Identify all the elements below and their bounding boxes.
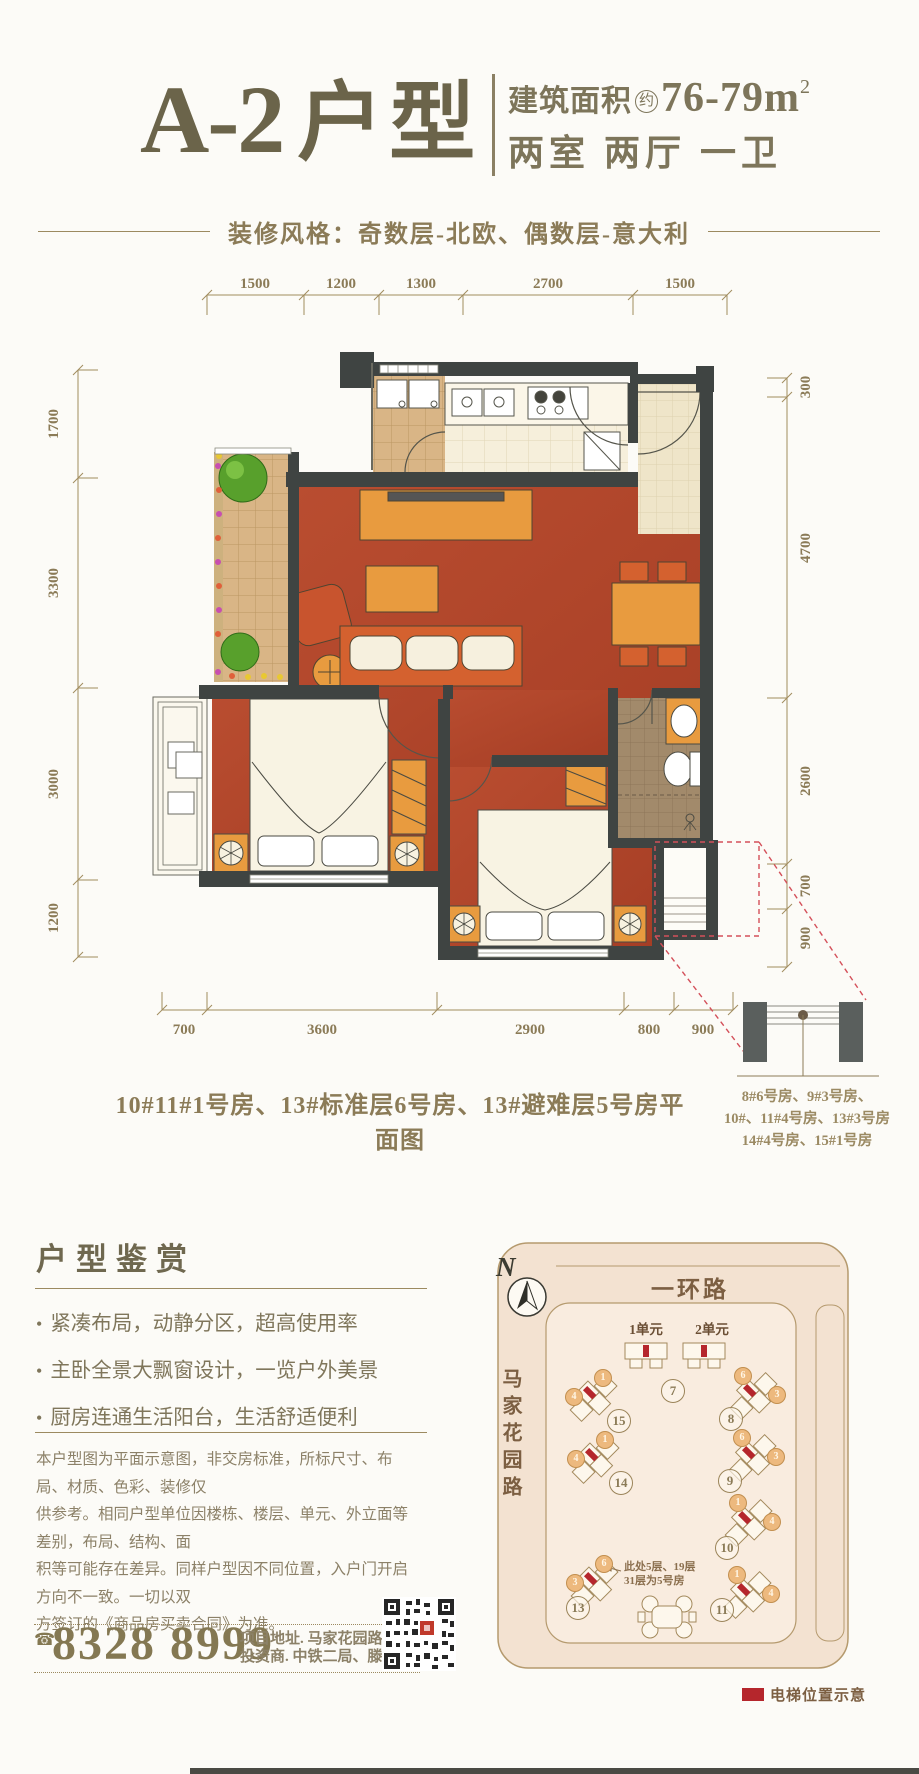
unit-circle: 3 xyxy=(566,1574,584,1592)
unit-type-suffix: 户型 xyxy=(297,75,481,171)
unit-circle: 4 xyxy=(763,1513,781,1531)
sink xyxy=(671,705,697,737)
dim-bottom-2: 2900 xyxy=(515,1022,545,1038)
style-banner-text: 装修风格：奇数层-北欧、偶数层-意大利 xyxy=(228,214,690,249)
coffee-table xyxy=(366,566,438,612)
qr-code xyxy=(382,1597,456,1671)
plan-caption: 10#11#1号房、13#标准层6号房、13#避难层5号房平面图 xyxy=(105,1085,695,1155)
rooms-line: 两室 两厅 一卫 xyxy=(508,124,782,176)
map-note-line: 31层为5号房 xyxy=(624,1574,744,1588)
elevator-note: 8#6号房、9#3号房、 10#、11#4号房、13#3号房 14#4号房、15… xyxy=(712,1086,902,1152)
features-underline xyxy=(35,1288,427,1289)
dim-right-4: 900 xyxy=(798,927,814,950)
style-banner: 装修风格：奇数层-北欧、偶数层-意大利 xyxy=(38,214,880,249)
feature-text: 主卧全景大飘窗设计，一览户外美景 xyxy=(50,1360,378,1382)
project-address: 项目地址. 马家花园路16号 投资商. 中铁二局、滕王阁地产 xyxy=(240,1630,390,1666)
unit-circle: 3 xyxy=(767,1448,785,1466)
road-label-left: 马家花园路 xyxy=(496,1368,525,1608)
entry-floor xyxy=(638,384,700,534)
map-note-line: 此处5层、19层 xyxy=(624,1560,744,1574)
contact-rule-bottom xyxy=(34,1672,420,1673)
building-number-15: 15 xyxy=(607,1409,631,1433)
building-number-7: 7 xyxy=(661,1379,685,1403)
unit-circle: 4 xyxy=(567,1450,585,1468)
unit-label-1: 1单元 xyxy=(618,1318,674,1338)
bullet-icon: • xyxy=(36,1408,42,1428)
compass-icon xyxy=(508,1278,546,1316)
elevator-inset xyxy=(737,1002,879,1076)
dim-bottom-3: 800 xyxy=(638,1022,661,1038)
dim-right-0: 300 xyxy=(798,376,814,399)
disclaimer-line: 供参考。相同户型单位因楼栋、楼层、单元、外立面等差别，布局、结构、面 xyxy=(36,1501,414,1556)
tv xyxy=(388,492,504,501)
dim-right-2: 2600 xyxy=(798,766,814,796)
feature-text: 紧凑布局，动静分区，超高使用率 xyxy=(50,1313,358,1335)
feature-text: 厨房连通生活阳台，生活舒适便利 xyxy=(50,1407,358,1429)
unit-circle: 4 xyxy=(762,1585,780,1603)
investor-line: 投资商. 中铁二局、滕王阁地产 xyxy=(240,1648,390,1666)
building-number-9: 9 xyxy=(718,1469,742,1493)
elevator-note-line: 8#6号房、9#3号房、 xyxy=(712,1086,902,1108)
dim-left-0: 1700 xyxy=(46,409,62,439)
site-map xyxy=(498,1243,848,1668)
bay-window xyxy=(153,697,207,875)
unit-circle: 6 xyxy=(733,1429,751,1447)
wardrobe xyxy=(392,760,426,834)
banner-rule-right xyxy=(708,231,880,232)
elevator-note-line: 14#4号房、15#1号房 xyxy=(712,1130,902,1152)
building-number-10: 10 xyxy=(715,1536,739,1560)
elevator-legend-label: 电梯位置示意 xyxy=(770,1684,866,1705)
building-number-13: 13 xyxy=(566,1596,590,1620)
dim-right-1: 4700 xyxy=(798,533,814,563)
disclaimer-divider xyxy=(35,1432,427,1433)
toilet xyxy=(664,752,692,786)
dim-bottom-0: 700 xyxy=(173,1022,196,1038)
bullet-icon: • xyxy=(36,1361,42,1381)
elevator-legend-icon xyxy=(742,1688,764,1701)
dim-top-2: 1300 xyxy=(406,276,436,292)
disclaimer-line: 积等可能存在差异。同样户型因不同位置，入户门开启方向不一致。一切以双 xyxy=(36,1556,414,1611)
features-list: •紧凑布局，动静分区，超高使用率 •主卧全景大飘窗设计，一览户外美景 •厨房连通… xyxy=(36,1306,436,1447)
feature-item: •主卧全景大飘窗设计，一览户外美景 xyxy=(36,1353,436,1383)
page-edge-line xyxy=(190,1768,919,1774)
unit-circle: 1 xyxy=(729,1494,747,1512)
unit-circle: 4 xyxy=(565,1388,583,1406)
disclaimer-line: 本户型图为平面示意图，非交房标准，所标尺寸、布局、材质、色彩、装修仅 xyxy=(36,1446,414,1501)
dim-top-0: 1500 xyxy=(240,276,270,292)
compass-label: N xyxy=(496,1252,516,1283)
dim-bottom-1: 3600 xyxy=(307,1022,337,1038)
area-label: 建筑面积 xyxy=(508,85,632,118)
disclaimer: 本户型图为平面示意图，非交房标准，所标尺寸、布局、材质、色彩、装修仅 供参考。相… xyxy=(36,1446,414,1639)
banner-rule-left xyxy=(38,231,210,232)
features-heading: 户型鉴赏 xyxy=(36,1234,196,1279)
building-number-14: 14 xyxy=(609,1471,633,1495)
road-label-top: 一环路 xyxy=(575,1270,805,1304)
hallway-floor xyxy=(448,690,610,760)
area-value: 76-79m xyxy=(661,75,800,121)
dim-top-1: 1200 xyxy=(326,276,356,292)
unit-circle: 1 xyxy=(594,1369,612,1387)
dim-top-4: 1500 xyxy=(665,276,695,292)
title-divider xyxy=(492,74,495,176)
dim-left-1: 3300 xyxy=(46,568,62,598)
dim-right-3: 700 xyxy=(798,875,814,898)
map-note: 此处5层、19层 31层为5号房 xyxy=(624,1560,744,1588)
building-number-8: 8 xyxy=(719,1407,743,1431)
unit-circle: 6 xyxy=(595,1555,613,1573)
area-superscript: 2 xyxy=(800,76,810,98)
unit-circle: 3 xyxy=(768,1386,786,1404)
bullet-icon: • xyxy=(36,1314,42,1334)
unit-circle: 1 xyxy=(596,1431,614,1449)
building-number-11: 11 xyxy=(710,1598,734,1622)
unit-type-code: A-2 xyxy=(140,66,283,173)
dim-left-2: 3000 xyxy=(46,769,62,799)
dining-table xyxy=(612,583,700,645)
dim-left-3: 1200 xyxy=(46,903,62,933)
unit-circle: 6 xyxy=(734,1367,752,1385)
elevator-nook xyxy=(664,848,706,930)
elevator-note-line: 10#、11#4号房、13#3号房 xyxy=(712,1108,902,1130)
area-line: 建筑面积约76-79m2 xyxy=(508,74,908,122)
dim-bottom-4: 900 xyxy=(692,1022,715,1038)
address-line: 项目地址. 马家花园路16号 xyxy=(240,1630,390,1648)
unit-label-2: 2单元 xyxy=(684,1318,740,1338)
approx-circle: 约 xyxy=(635,90,658,113)
dim-top-3: 2700 xyxy=(533,276,563,292)
feature-item: •紧凑布局，动静分区，超高使用率 xyxy=(36,1306,436,1336)
flyer-page: 1500 1200 1300 2700 1500 1700 3300 3000 … xyxy=(0,0,919,1774)
feature-item: •厨房连通生活阳台，生活舒适便利 xyxy=(36,1400,436,1430)
